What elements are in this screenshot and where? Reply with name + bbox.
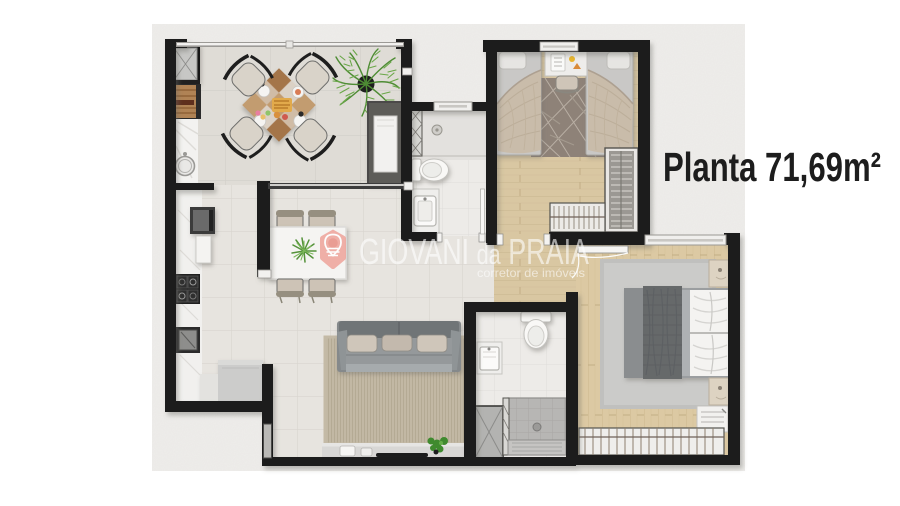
- svg-text:corretor de imóveis: corretor de imóveis: [477, 266, 585, 280]
- svg-text:Planta 71,69m²: Planta 71,69m²: [663, 144, 881, 190]
